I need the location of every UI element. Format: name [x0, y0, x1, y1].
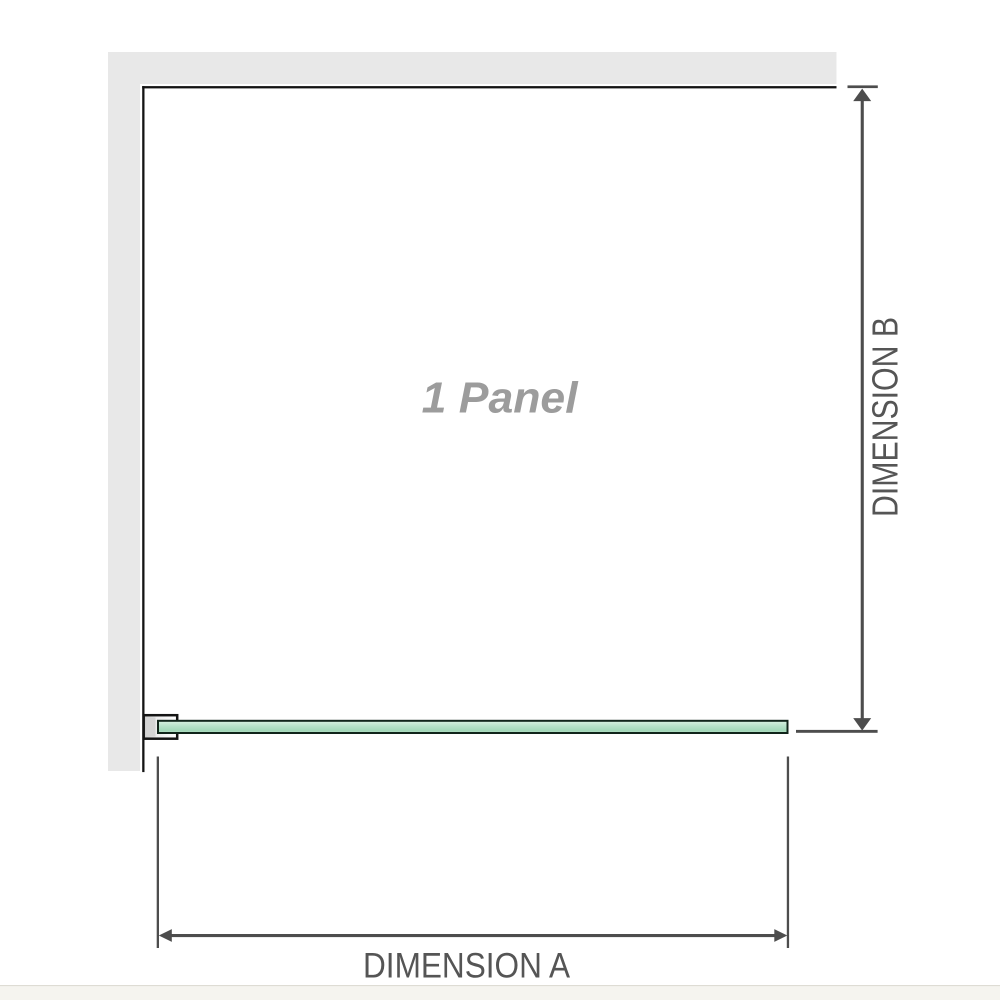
svg-text:DIMENSION B: DIMENSION B — [865, 317, 906, 517]
svg-text:1 Panel: 1 Panel — [422, 375, 579, 423]
svg-text:DIMENSION A: DIMENSION A — [363, 947, 571, 986]
